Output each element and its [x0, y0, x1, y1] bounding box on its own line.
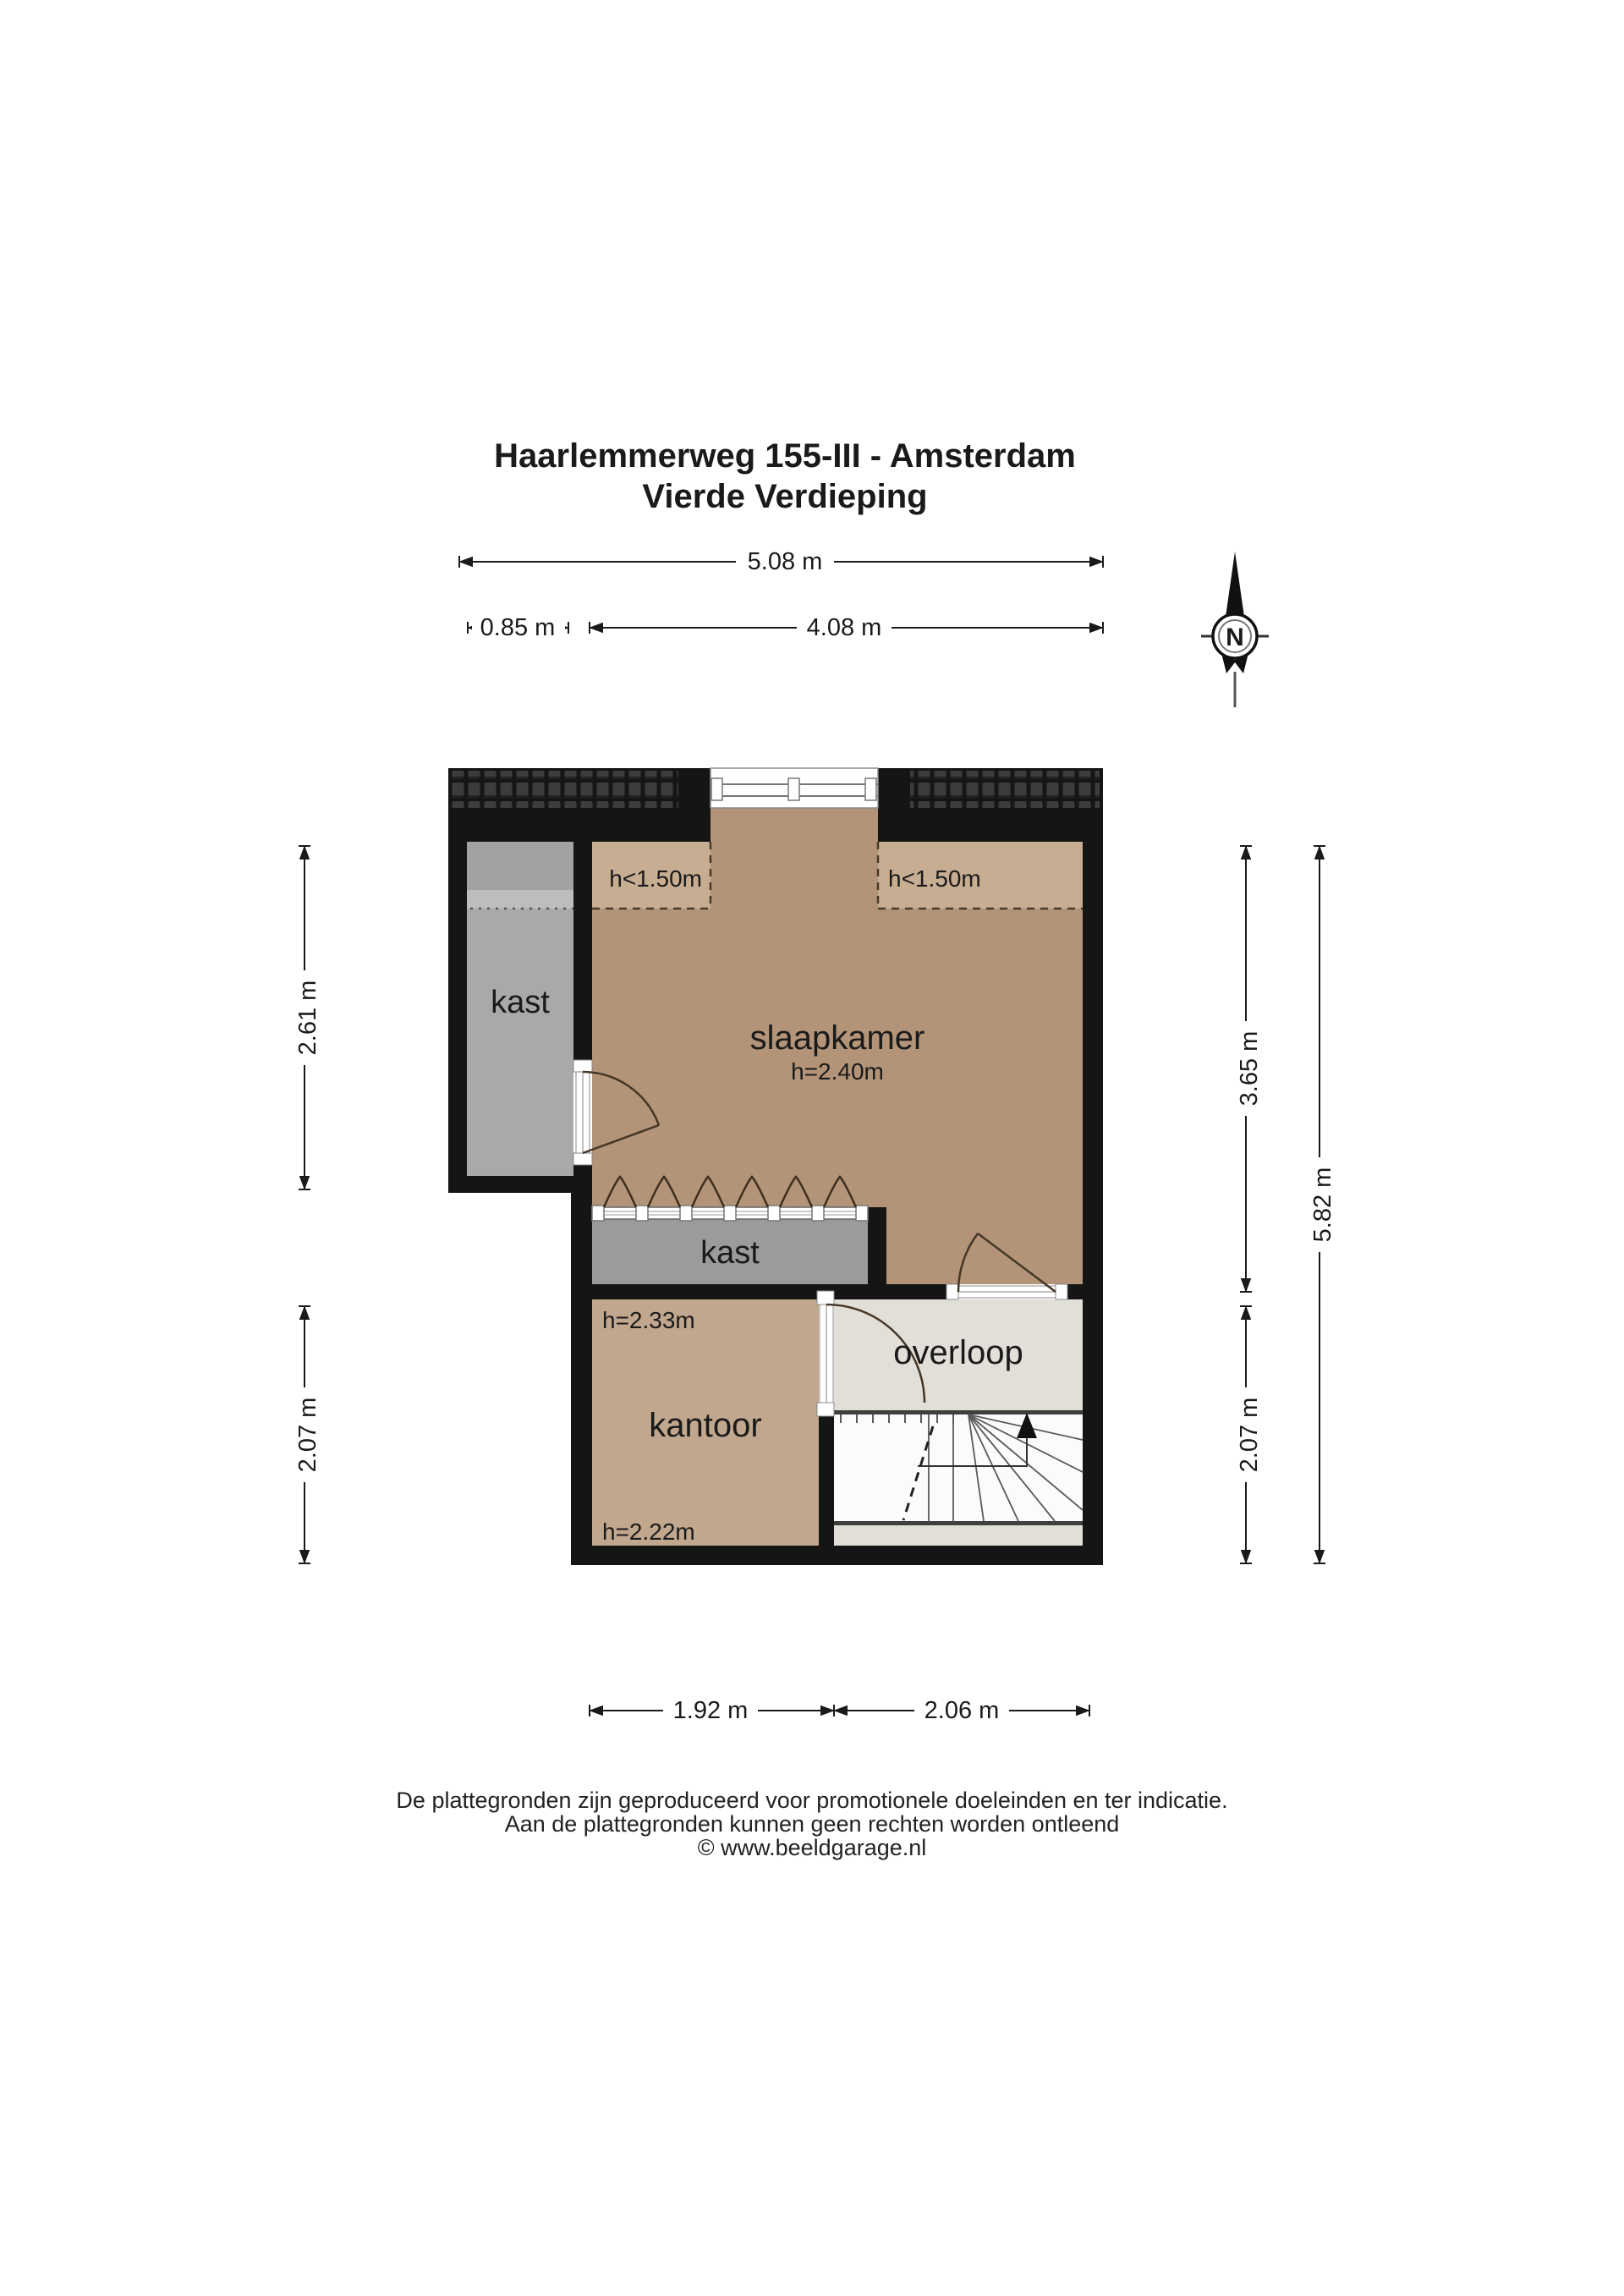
- compass-needle-icon: [1225, 552, 1245, 623]
- dim-top-right: 4.08 m: [590, 612, 1103, 643]
- compass: N: [1201, 552, 1269, 707]
- landing-label: overloop: [893, 1334, 1023, 1371]
- door-office-jamb-top: [817, 1291, 834, 1305]
- window-mullion-left: [711, 778, 722, 800]
- door-bedroom-jamb-right: [1056, 1284, 1067, 1299]
- bedroom-window-bay-floor: [710, 808, 878, 842]
- closet-left-floor-mid: [467, 890, 573, 909]
- wall-bedroom-bottom-left: [573, 1284, 946, 1299]
- staircase-floor: [834, 1414, 1083, 1521]
- wall-closet-bottom: [448, 1176, 592, 1193]
- dim-left-upper: 2.61 m: [289, 846, 321, 1189]
- wall-left-upper: [448, 842, 467, 1193]
- wall-right: [1083, 842, 1103, 1546]
- footer-copyright: © www.beeldgarage.nl: [698, 1835, 927, 1860]
- wall-closet-divider-lower: [573, 1165, 592, 1193]
- page-title: Haarlemmerweg 155-III - Amsterdam: [494, 437, 1076, 475]
- door-closet-jamb-top: [573, 1060, 592, 1072]
- low-headroom-right-label: h<1.50m: [888, 865, 981, 892]
- footer: De plattegronden zijn geproduceerd voor …: [396, 1788, 1227, 1860]
- window-mullion-center: [788, 778, 799, 800]
- door-bedroom-jamb-left: [946, 1284, 958, 1299]
- wall-bedroom-bottom-right: [1067, 1284, 1083, 1299]
- window-mullion-right: [865, 778, 876, 800]
- footer-disclaimer-line2: Aan de plattegronden kunnen geen rechten…: [505, 1811, 1120, 1837]
- wall-closet-divider-upper: [573, 842, 592, 1060]
- dim-bottom-right: 2.06 m: [834, 1695, 1089, 1726]
- landing-floor-below-stairs: [834, 1525, 1083, 1546]
- office-height-bottom-label: h=2.22m: [602, 1519, 695, 1545]
- floorplan-canvas: Haarlemmerweg 155-III - Amsterdam Vierde…: [0, 0, 1624, 2296]
- dim-right-lower-label: 2.07 m: [1236, 1398, 1263, 1473]
- dim-top-total: 5.08 m: [459, 547, 1103, 577]
- page-subtitle: Vierde Verdieping: [642, 478, 927, 515]
- low-headroom-left-label: h<1.50m: [609, 865, 702, 892]
- dim-left-lower-label: 2.07 m: [294, 1398, 321, 1473]
- dim-top-left-label: 0.85 m: [480, 614, 556, 641]
- dim-right-upper: 3.65 m: [1231, 846, 1263, 1292]
- window: [710, 768, 878, 808]
- dim-right-total-label: 5.82 m: [1309, 1167, 1336, 1243]
- office-height-top-label: h=2.33m: [602, 1307, 695, 1333]
- bedroom-label: slaapkamer: [750, 1019, 925, 1057]
- footer-disclaimer-line1: De plattegronden zijn geproduceerd voor …: [396, 1788, 1227, 1813]
- door-closet-jamb-bottom: [573, 1153, 592, 1165]
- wall-bottom: [571, 1546, 1103, 1565]
- dim-left-lower: 2.07 m: [289, 1306, 321, 1563]
- dim-right-upper-label: 3.65 m: [1236, 1031, 1263, 1107]
- dim-left-upper-label: 2.61 m: [294, 980, 321, 1056]
- roof-tiles-right: [910, 771, 1100, 808]
- wall-office-landing-divider: [819, 1416, 834, 1546]
- dim-top-right-label: 4.08 m: [807, 614, 882, 641]
- compass-north-label: N: [1226, 623, 1244, 651]
- wall-window-bay-left: [682, 768, 710, 842]
- closet-left-label: kast: [491, 985, 550, 1020]
- dim-bottom-left-label: 1.92 m: [673, 1697, 749, 1724]
- wall-window-bay-right: [878, 768, 907, 842]
- dim-right-lower: 2.07 m: [1231, 1306, 1263, 1563]
- title-block: Haarlemmerweg 155-III - Amsterdam Vierde…: [494, 437, 1076, 515]
- closet-left-floor-top: [467, 842, 573, 890]
- door-office-jamb-bottom: [817, 1403, 834, 1416]
- staircase-top-edge: [834, 1410, 1083, 1414]
- wardrobe-label: kast: [700, 1235, 760, 1271]
- dim-bottom-right-label: 2.06 m: [924, 1697, 1000, 1724]
- office-label: kantoor: [649, 1407, 761, 1444]
- staircase: [834, 1410, 1083, 1525]
- dim-top-left: 0.85 m: [468, 612, 568, 643]
- wall-wardrobe-right: [868, 1207, 886, 1284]
- bedroom-height-label: h=2.40m: [791, 1058, 884, 1085]
- roof-tiles-left: [452, 771, 678, 808]
- wall-left-lower: [571, 1193, 592, 1546]
- dim-top-total-label: 5.08 m: [748, 548, 823, 575]
- dim-bottom-left: 1.92 m: [590, 1695, 834, 1726]
- staircase-bottom-edge: [834, 1521, 1083, 1525]
- dim-right-total: 5.82 m: [1304, 846, 1336, 1563]
